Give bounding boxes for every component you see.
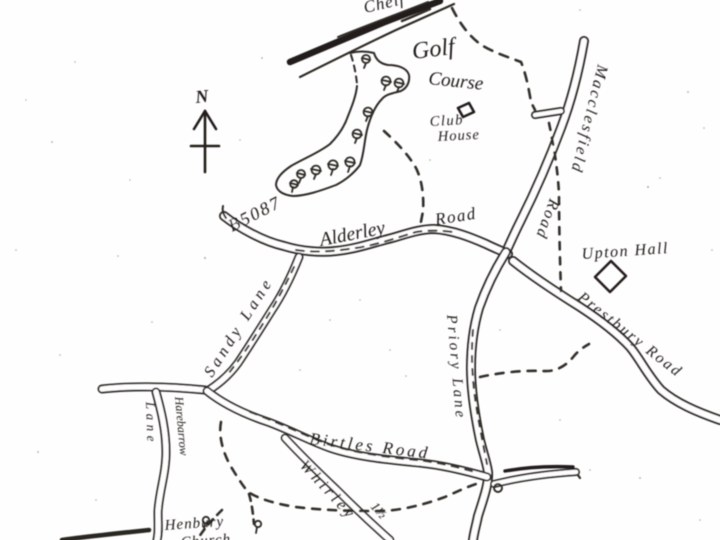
svg-text:House: House [436, 127, 480, 145]
svg-text:Golf: Golf [411, 34, 460, 65]
svg-text:Lane: Lane [143, 401, 160, 446]
